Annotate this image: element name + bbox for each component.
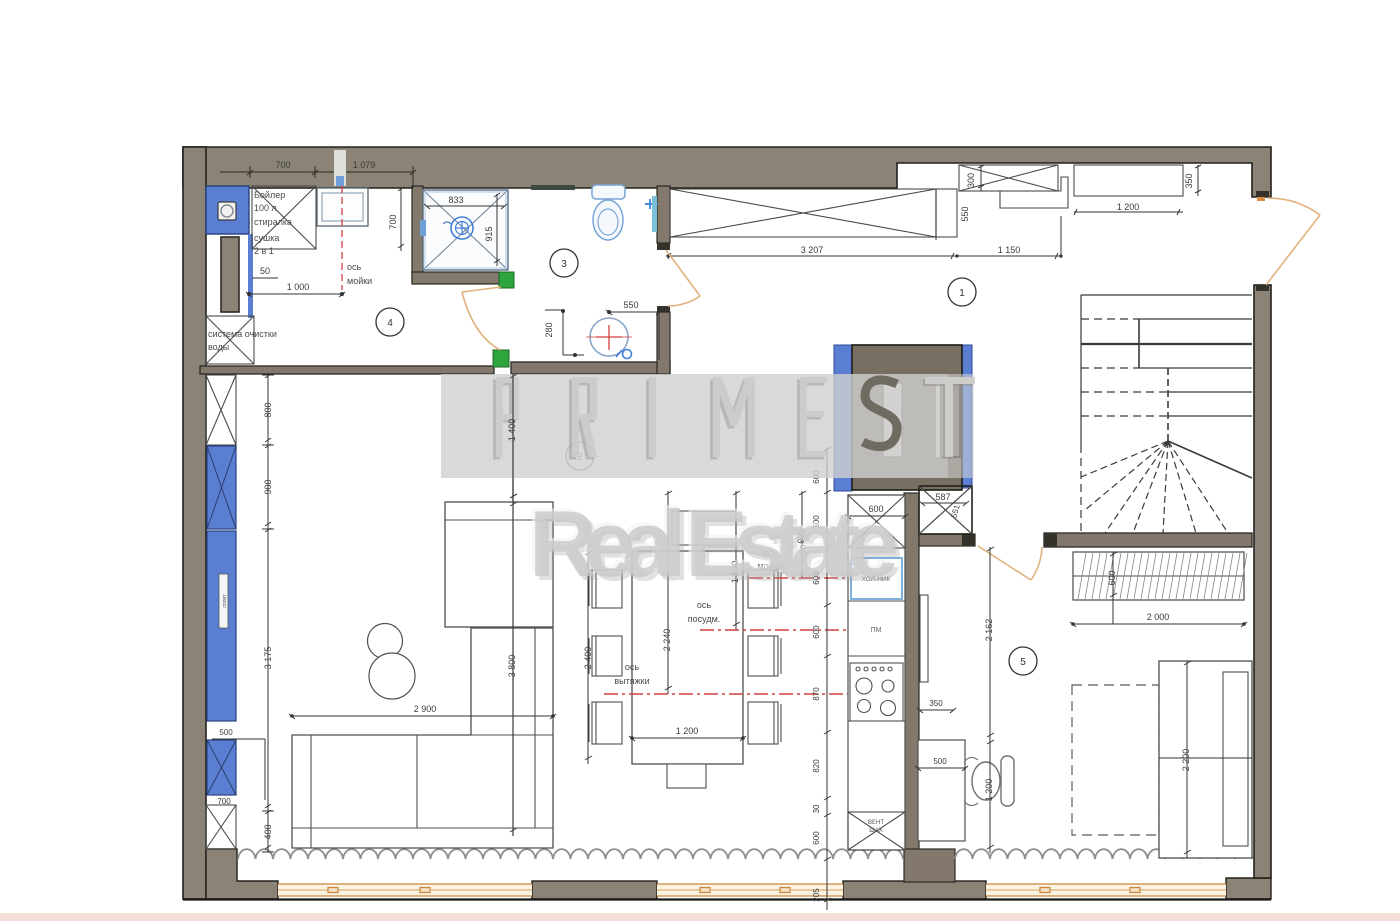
- svg-text:2 000: 2 000: [1147, 612, 1170, 622]
- svg-text:280: 280: [544, 322, 554, 337]
- svg-text:820: 820: [812, 759, 821, 773]
- svg-text:ПМ: ПМ: [871, 627, 882, 634]
- svg-text:100 л: 100 л: [254, 203, 277, 213]
- svg-text:550: 550: [960, 206, 970, 221]
- svg-text:3 800: 3 800: [507, 655, 517, 678]
- svg-text:1: 1: [959, 288, 965, 299]
- svg-text:воды: воды: [208, 342, 229, 352]
- svg-text:ШАХ: ШАХ: [869, 828, 883, 834]
- svg-text:500: 500: [933, 757, 947, 766]
- svg-text:400: 400: [263, 824, 273, 839]
- svg-text:2 240: 2 240: [662, 629, 672, 652]
- svg-text:3 175: 3 175: [263, 647, 273, 670]
- svg-text:700: 700: [388, 214, 398, 229]
- svg-text:ось: ось: [347, 262, 362, 272]
- svg-text:300: 300: [966, 173, 976, 188]
- svg-text:550: 550: [623, 300, 638, 310]
- svg-text:3: 3: [561, 259, 567, 270]
- svg-text:2 в 1: 2 в 1: [254, 246, 274, 256]
- svg-text:600: 600: [812, 831, 821, 845]
- svg-text:5: 5: [1020, 657, 1026, 668]
- svg-text:900: 900: [263, 479, 273, 494]
- svg-text:ВЕНТ: ВЕНТ: [868, 820, 884, 826]
- svg-text:587: 587: [935, 492, 950, 502]
- svg-text:1 200: 1 200: [1117, 202, 1140, 212]
- svg-text:вытяжки: вытяжки: [614, 676, 649, 686]
- svg-text:2 900: 2 900: [414, 704, 437, 714]
- svg-text:система очистки: система очистки: [208, 329, 277, 339]
- svg-text:833: 833: [448, 195, 463, 205]
- svg-text:стиралка: стиралка: [254, 217, 292, 227]
- svg-text:205: 205: [812, 888, 821, 902]
- svg-text:870: 870: [812, 687, 821, 701]
- svg-text:2 162: 2 162: [984, 619, 994, 642]
- svg-text:Бойлер: Бойлер: [254, 190, 285, 200]
- svg-text:350: 350: [929, 699, 943, 708]
- svg-text:350: 350: [1184, 173, 1194, 188]
- svg-text:3 207: 3 207: [801, 245, 824, 255]
- svg-text:Real Estate: Real Estate: [529, 491, 899, 596]
- svg-text:700: 700: [275, 160, 290, 170]
- svg-text:1 150: 1 150: [998, 245, 1021, 255]
- svg-text:1 000: 1 000: [287, 282, 310, 292]
- svg-text:915: 915: [484, 226, 494, 241]
- svg-text:посудм.: посудм.: [688, 614, 721, 624]
- svg-text:мойки: мойки: [347, 276, 372, 286]
- svg-text:500: 500: [219, 728, 233, 737]
- svg-text:4: 4: [387, 318, 393, 329]
- svg-text:1 200: 1 200: [984, 779, 994, 802]
- svg-text:600: 600: [812, 625, 821, 639]
- svg-text:ось: ось: [625, 662, 640, 672]
- svg-text:1 200: 1 200: [676, 726, 699, 736]
- svg-text:ось: ось: [697, 600, 712, 610]
- svg-text:600: 600: [1107, 570, 1117, 585]
- svg-text:800: 800: [263, 402, 273, 417]
- svg-text:1 400: 1 400: [507, 419, 517, 442]
- svg-text:30: 30: [812, 804, 821, 813]
- svg-text:сплит: сплит: [222, 594, 228, 608]
- svg-text:1 079: 1 079: [353, 160, 376, 170]
- svg-text:700: 700: [217, 797, 231, 806]
- svg-text:2 200: 2 200: [1181, 749, 1191, 772]
- svg-text:50: 50: [260, 266, 270, 276]
- svg-text:сушка: сушка: [254, 233, 279, 243]
- svg-text:2 400: 2 400: [583, 647, 593, 670]
